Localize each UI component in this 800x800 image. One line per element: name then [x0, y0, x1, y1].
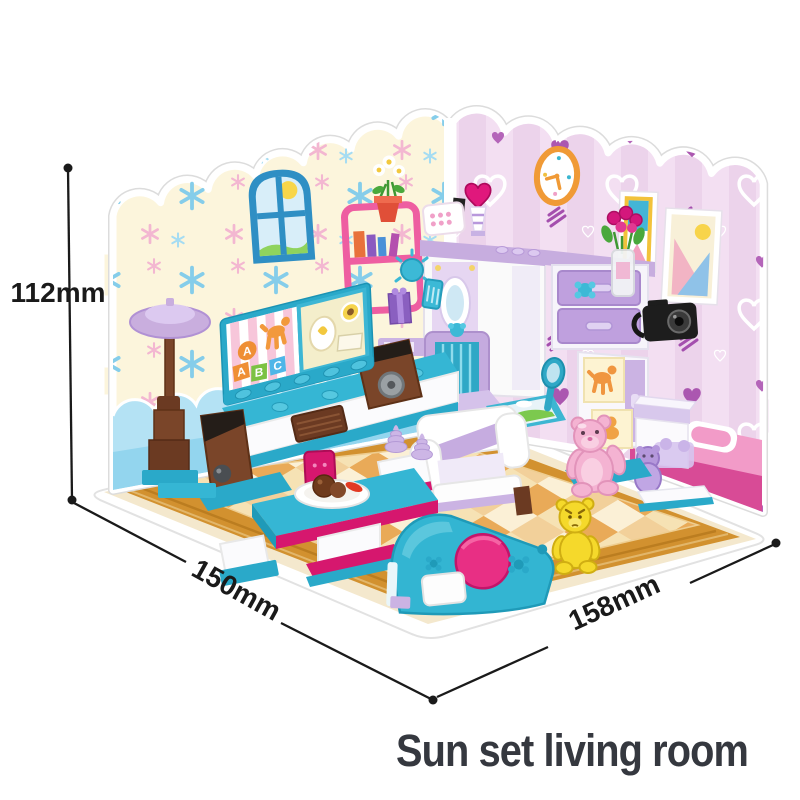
book — [353, 231, 365, 258]
svg-text:A: A — [243, 343, 253, 359]
height-label: 112mm — [11, 277, 106, 308]
svg-text:B: B — [255, 364, 264, 380]
svg-text:C: C — [273, 358, 283, 374]
lamp-base-plate — [142, 470, 198, 485]
dimension-height: 112mm — [11, 164, 106, 505]
wall-clock — [534, 147, 579, 205]
chair-leg — [513, 486, 532, 516]
book — [378, 237, 387, 256]
drawer-handle — [586, 322, 612, 330]
product-image-canvas: A A B C — [0, 0, 800, 800]
picture-frame-large — [661, 208, 722, 305]
book — [366, 234, 376, 256]
product-title: Sun set living room — [396, 725, 748, 776]
arched-window — [247, 168, 315, 264]
balloon-dog-art — [584, 358, 624, 402]
